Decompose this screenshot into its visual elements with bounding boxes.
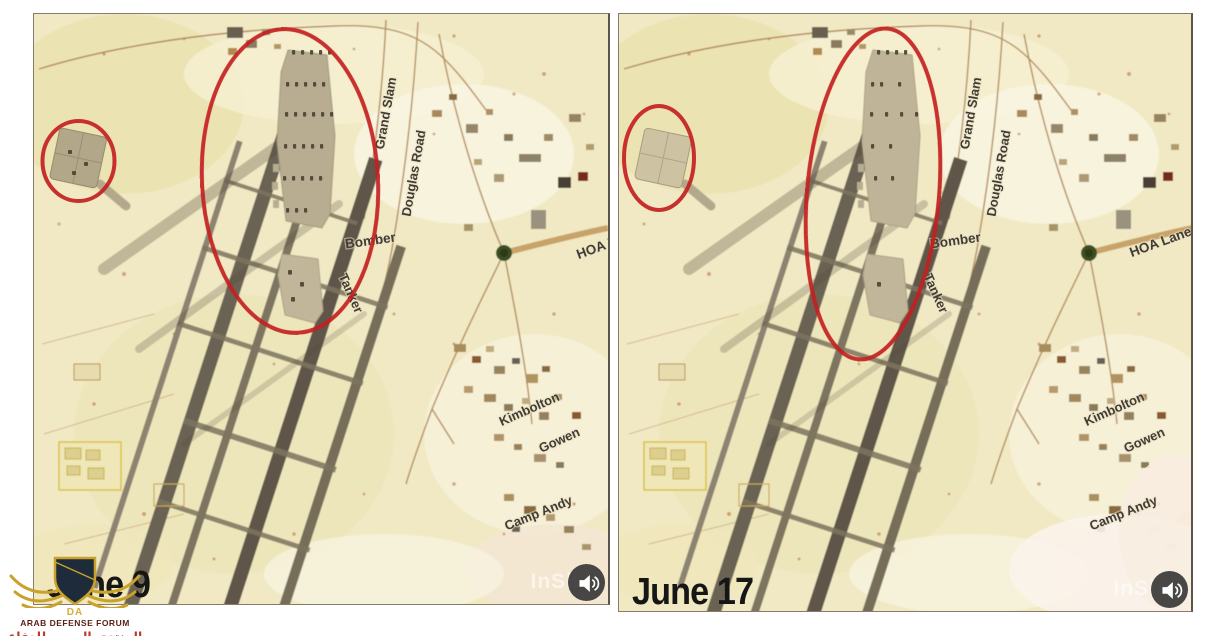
speaker-icon [1153,573,1187,607]
date-label: June 17 [632,573,753,611]
shield-wings-icon [9,556,141,608]
satellite-map-june-9: Grand Slam Douglas Road Bomber Tanker HO… [34,14,608,605]
satellite-panel-june-9: Grand Slam Douglas Road Bomber Tanker HO… [33,13,610,605]
logo-title: ARAB DEFENSE FORUM [0,618,150,628]
satellite-panel-june-17: Grand Slam Douglas Road Bomber Tanker HO… [618,13,1193,612]
mute-toggle-button[interactable] [1151,571,1188,608]
satellite-map-june-17: Grand Slam Douglas Road Bomber Tanker HO… [619,14,1193,611]
nw-parking-pad [634,128,692,189]
speaker-icon [570,566,604,600]
screenshot-stage: Grand Slam Douglas Road Bomber Tanker HO… [0,0,1221,636]
nw-parking-pad [49,128,107,189]
logo-subtitle: المنتدى العربي للدفاع والتسليح [0,629,150,636]
mute-toggle-button[interactable] [568,564,605,601]
arab-defense-forum-logo: DA ARAB DEFENSE FORUM المنتدى العربي للد… [0,556,150,636]
logo-monogram: DA [0,607,150,618]
